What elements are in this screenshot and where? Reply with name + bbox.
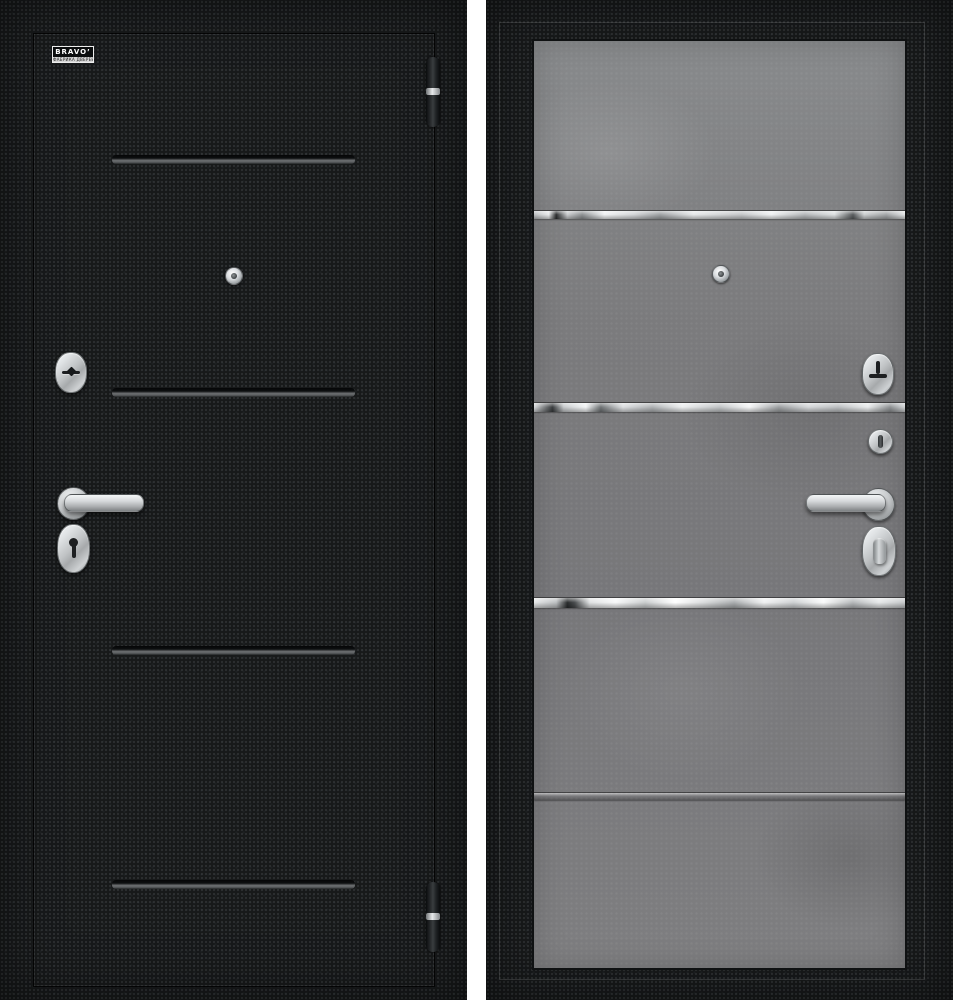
door-exterior-view: BRAVO’ ФАБРИКА ДВЕРЕЙ <box>0 0 467 1000</box>
keyhole-stem <box>72 544 76 558</box>
peephole-icon <box>225 267 243 285</box>
mirror-strip <box>534 598 905 608</box>
thumbturn-slot <box>878 435 883 448</box>
keyhole-bar <box>869 374 887 378</box>
latch-knob-escutcheon <box>862 526 896 576</box>
concrete-panel <box>532 39 907 970</box>
peephole-lens <box>231 273 237 279</box>
mirror-strip <box>534 793 905 800</box>
lever-handle <box>806 494 886 512</box>
lever-handle <box>64 494 144 512</box>
door-product-image: BRAVO’ ФАБРИКА ДВЕРЕЙ <box>0 0 953 1000</box>
hinge-band <box>426 913 440 920</box>
hinge-bottom <box>426 882 440 952</box>
mirror-strip <box>534 403 905 412</box>
mirror-strip <box>534 211 905 219</box>
keyhole-escutcheon <box>862 353 894 395</box>
groove-line <box>112 880 355 889</box>
keyhole-slot-center <box>67 367 77 377</box>
peephole-lens <box>718 271 724 277</box>
hinge-top <box>426 57 440 127</box>
brand-logo-tagline: ФАБРИКА ДВЕРЕЙ <box>53 57 93 62</box>
groove-line <box>112 646 355 655</box>
keyhole-slot <box>876 361 880 374</box>
thumbturn <box>868 429 893 454</box>
brand-logo-text: BRAVO’ <box>53 47 93 57</box>
groove-line <box>112 155 355 164</box>
hinge-band <box>426 88 440 95</box>
keyhole-escutcheon <box>55 352 87 393</box>
brand-logo: BRAVO’ ФАБРИКА ДВЕРЕЙ <box>52 46 94 63</box>
peephole-icon <box>712 265 730 283</box>
latch-knob <box>873 538 886 564</box>
cylinder-keyhole-escutcheon <box>57 524 90 573</box>
groove-line <box>112 388 355 397</box>
door-interior-view <box>486 0 953 1000</box>
